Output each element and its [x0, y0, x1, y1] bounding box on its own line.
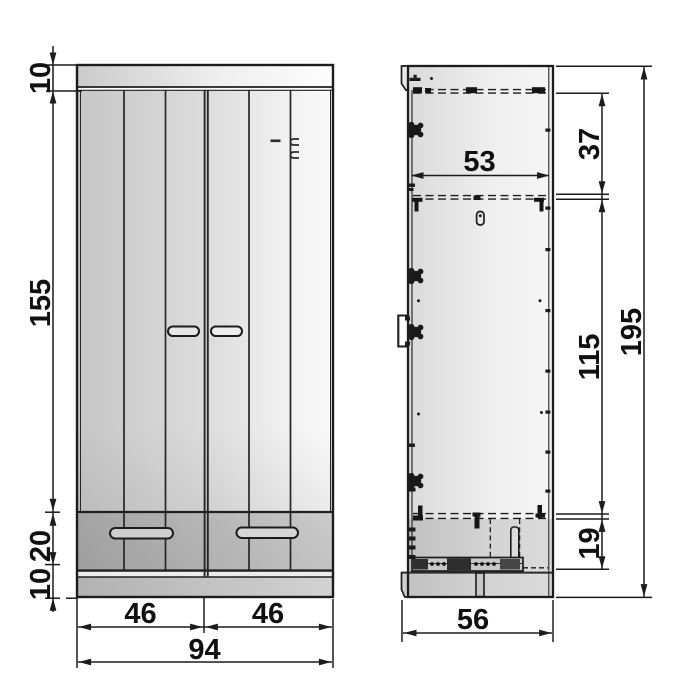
- front-view: [77, 65, 333, 597]
- dim-left-door-width-label: 46: [124, 598, 156, 630]
- dim-drawer-height-label: 20: [25, 530, 57, 562]
- wardrobe-technical-drawing: 10 155 20 10 46 46 94: [0, 0, 700, 700]
- right-door-handle: [211, 327, 242, 337]
- dim-door-height-label: 155: [25, 279, 57, 327]
- side-center-leg: [476, 573, 484, 597]
- dim-plinth-height-label: 10: [25, 568, 57, 600]
- dim-right-door-width-label: 46: [252, 598, 284, 630]
- dim-drawer-compartment-label: 19: [574, 527, 606, 559]
- dim-overall-width-label: 94: [188, 634, 220, 666]
- dim-top-panel-height-label: 10: [25, 62, 57, 94]
- dim-interior-depth-label: 53: [463, 146, 495, 178]
- drawer-slide-assembly: [412, 558, 523, 572]
- front-top-panel: [77, 65, 333, 87]
- dim-front-width-chain: 46 46 94: [77, 598, 333, 668]
- right-drawer-handle: [237, 528, 299, 539]
- front-plinth: [77, 577, 333, 597]
- left-drawer-handle: [110, 528, 173, 539]
- dim-overall-height-label: 195: [616, 308, 648, 356]
- dim-upper-compartment-label: 37: [574, 128, 606, 160]
- dim-left-chain: 10 155 20 10: [25, 46, 82, 612]
- left-door-handle: [168, 327, 199, 337]
- dim-right-chain: 37 115 19: [556, 93, 609, 569]
- side-keyhole: [477, 212, 484, 226]
- dim-overall-depth-label: 56: [457, 604, 489, 636]
- drawing-canvas: 10 155 20 10 46 46 94: [0, 0, 700, 700]
- dim-overall-depth: 56: [402, 600, 553, 642]
- dim-main-compartment-label: 115: [574, 334, 606, 381]
